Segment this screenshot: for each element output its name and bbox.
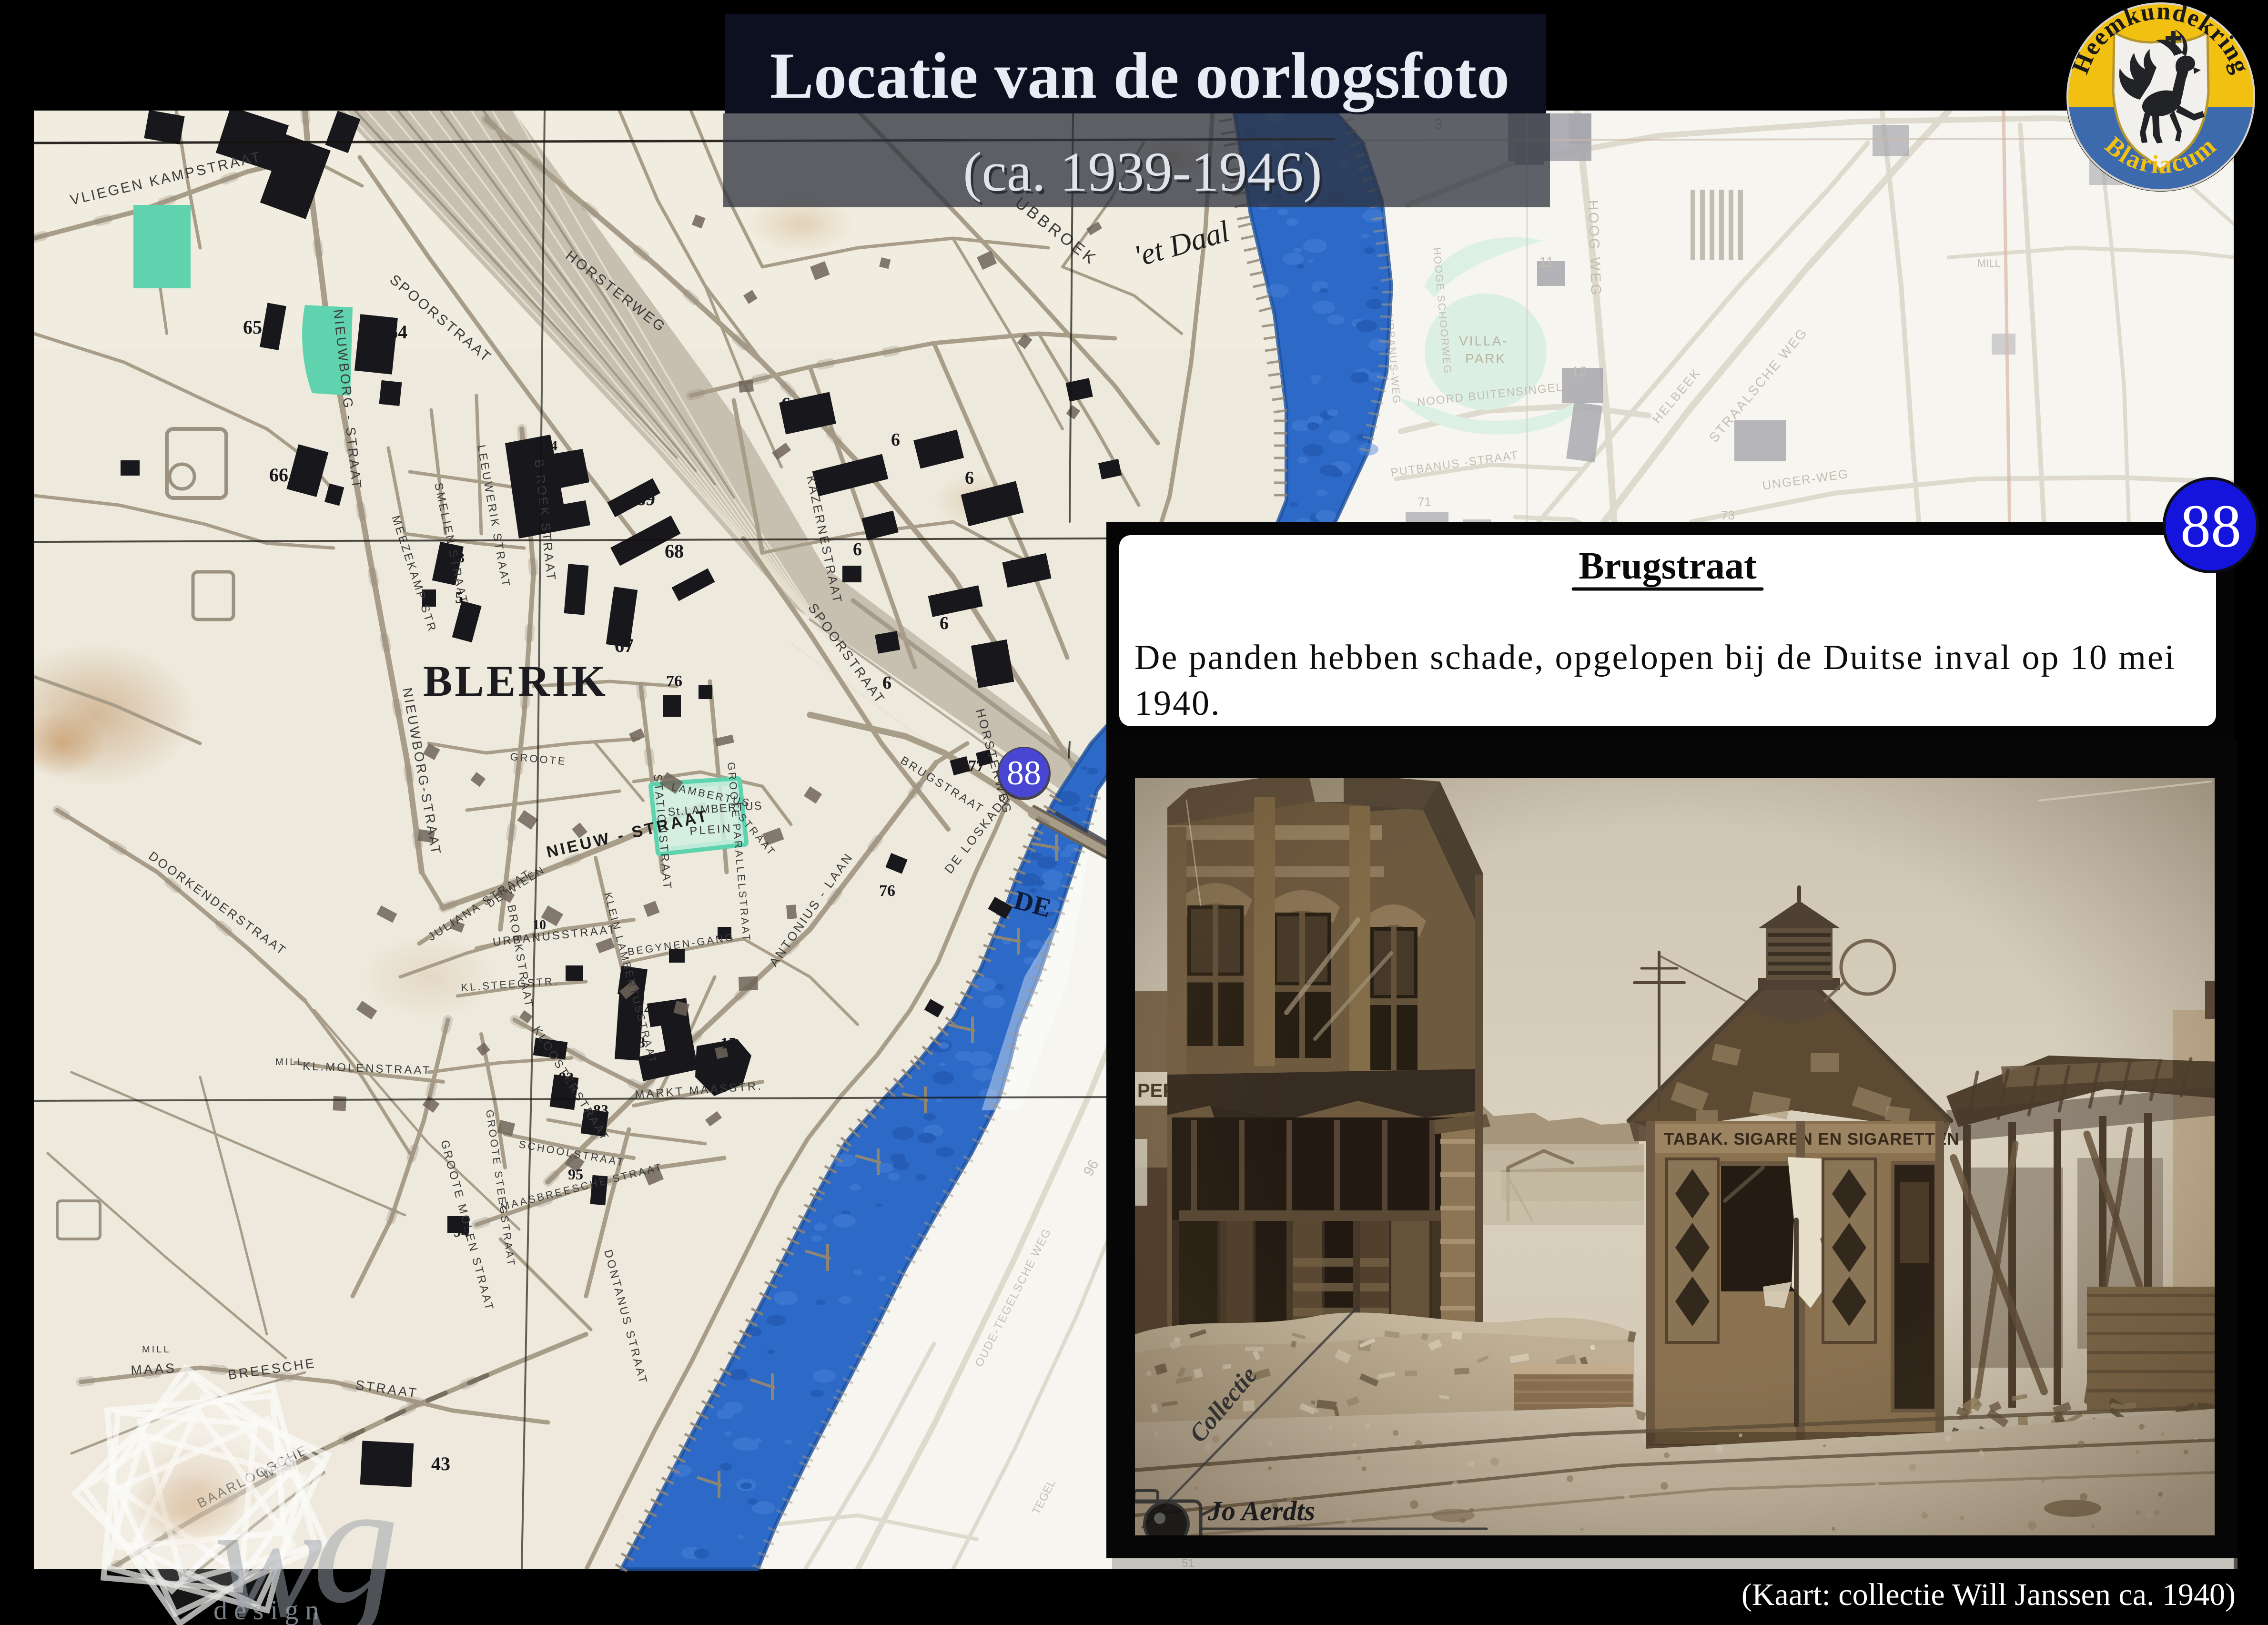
svg-text:2: 2 [305, 172, 315, 195]
svg-text:81: 81 [537, 1040, 553, 1057]
svg-text:66: 66 [269, 464, 288, 486]
svg-text:(Kaart: collectie Will Janssen: (Kaart: collectie Will Janssen ca. 1940) [1741, 1577, 2236, 1612]
svg-text:BLERIK: BLERIK [423, 657, 608, 705]
svg-text:71: 71 [1417, 495, 1431, 509]
svg-text:6: 6 [891, 430, 900, 450]
svg-text:6: 6 [940, 613, 949, 633]
svg-text:103: 103 [443, 550, 465, 566]
svg-text:69: 69 [636, 488, 655, 509]
svg-text:11: 11 [1539, 254, 1554, 270]
svg-text:104: 104 [536, 438, 557, 454]
svg-text:15: 15 [720, 1035, 737, 1052]
svg-text:Locatie van de oorlogsfoto: Locatie van de oorlogsfoto [770, 39, 1509, 112]
svg-text:6: 6 [853, 539, 862, 559]
svg-text:65: 65 [243, 316, 262, 338]
svg-text:(ca. 1939-1946): (ca. 1939-1946) [963, 141, 1322, 203]
svg-text:MILL: MILL [275, 1057, 304, 1067]
svg-text:64: 64 [388, 321, 407, 343]
svg-text:94: 94 [454, 1223, 469, 1240]
svg-text:83: 83 [593, 1101, 608, 1118]
svg-text:VILLA-: VILLA- [1459, 334, 1509, 348]
svg-text:PARK: PARK [1465, 351, 1506, 366]
svg-text:Brugstraat: Brugstraat [1579, 545, 1757, 587]
svg-text:Jo Aerdts: Jo Aerdts [1207, 1495, 1315, 1526]
svg-text:88: 88 [2180, 492, 2241, 560]
svg-text:1940.: 1940. [1134, 684, 1221, 723]
svg-text:77: 77 [968, 757, 984, 775]
svg-text:MAAS: MAAS [131, 1361, 177, 1378]
svg-text:5: 5 [455, 589, 463, 607]
svg-text:MILL: MILL [142, 1344, 171, 1355]
svg-text:95: 95 [568, 1166, 583, 1183]
svg-text:MILL: MILL [1977, 257, 2001, 269]
svg-text:De panden hebben schade, opgel: De panden hebben schade, opgelopen bij d… [1134, 638, 2176, 677]
svg-text:73: 73 [1721, 508, 1735, 522]
svg-text:88: 88 [1007, 754, 1041, 792]
svg-text:51: 51 [1086, 1575, 1100, 1590]
svg-text:48: 48 [630, 1034, 645, 1051]
svg-text:68: 68 [665, 540, 684, 562]
svg-text:6: 6 [781, 394, 790, 414]
svg-text:6: 6 [882, 673, 891, 693]
svg-text:6: 6 [965, 468, 974, 488]
svg-text:43: 43 [431, 1453, 450, 1474]
svg-text:82: 82 [558, 1069, 574, 1086]
svg-text:67: 67 [615, 635, 634, 656]
svg-text:12: 12 [1571, 364, 1587, 380]
svg-text:49: 49 [644, 1000, 659, 1017]
svg-text:design: design [213, 1595, 325, 1625]
svg-text:6: 6 [1008, 556, 1017, 576]
svg-text:76: 76 [879, 882, 895, 900]
svg-text:76: 76 [666, 672, 682, 690]
